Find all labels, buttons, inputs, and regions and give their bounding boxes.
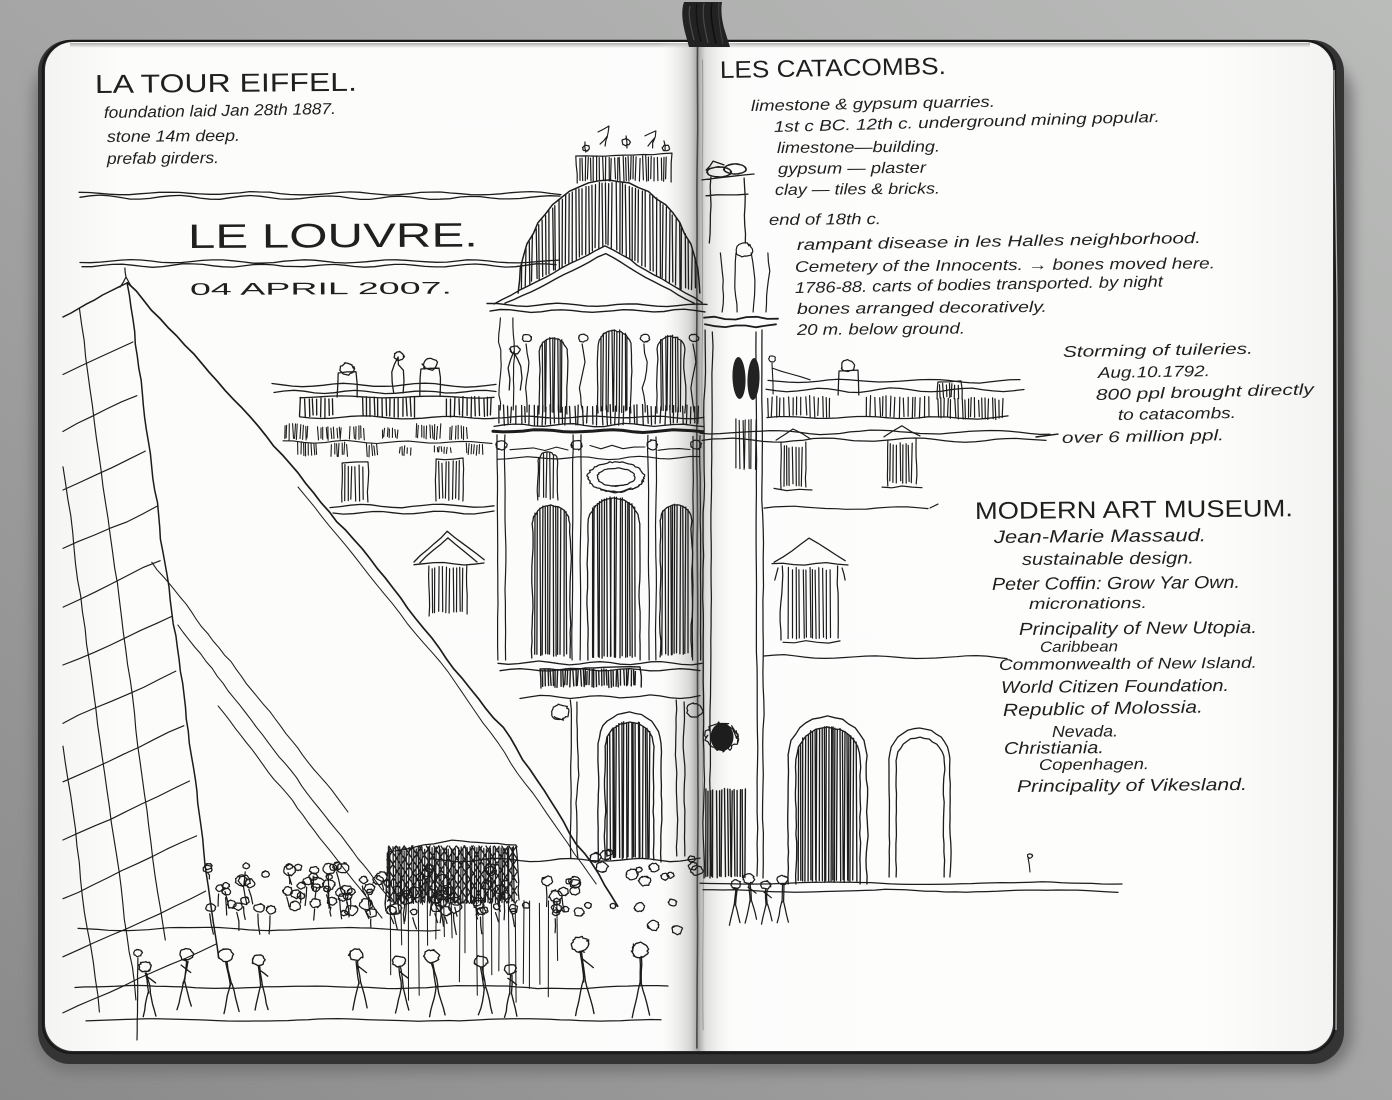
svg-text:Storming of tuileries.: Storming of tuileries. — [1063, 341, 1253, 361]
svg-text:Christiania.: Christiania. — [1004, 738, 1104, 758]
svg-text:20 m. below ground.: 20 m. below ground. — [796, 321, 965, 339]
svg-text:Aug.10.1792.: Aug.10.1792. — [1097, 363, 1210, 382]
svg-text:LE LOUVRE.: LE LOUVRE. — [188, 216, 478, 256]
svg-text:Republic of Molossia.: Republic of Molossia. — [1003, 697, 1203, 720]
svg-text:prefab girders.: prefab girders. — [106, 150, 219, 168]
svg-text:stone 14m deep.: stone 14m deep. — [107, 128, 240, 146]
svg-text:04 APRIL 2007.: 04 APRIL 2007. — [190, 279, 452, 299]
svg-text:Principality of New Utopia.: Principality of New Utopia. — [1019, 617, 1257, 639]
svg-text:bones arranged decoratively.: bones arranged decoratively. — [797, 299, 1047, 318]
svg-text:gypsum — plaster: gypsum — plaster — [778, 160, 927, 178]
svg-text:limestone—building.: limestone—building. — [777, 139, 940, 157]
svg-text:Caribbean: Caribbean — [1040, 638, 1118, 656]
svg-text:over 6 million ppl.: over 6 million ppl. — [1062, 427, 1224, 447]
svg-text:micronations.: micronations. — [1029, 595, 1147, 613]
svg-text:Principality of Vikesland.: Principality of Vikesland. — [1017, 775, 1247, 796]
svg-text:sustainable design.: sustainable design. — [1022, 548, 1194, 569]
svg-text:Commonwealth of New Island.: Commonwealth of New Island. — [999, 655, 1257, 674]
svg-text:Peter Coffin: Grow Yar Own.: Peter Coffin: Grow Yar Own. — [992, 572, 1240, 594]
svg-text:to catacombs.: to catacombs. — [1118, 405, 1236, 424]
svg-text:LA TOUR EIFFEL.: LA TOUR EIFFEL. — [95, 67, 357, 99]
svg-text:LES CATACOMBS.: LES CATACOMBS. — [720, 53, 946, 84]
svg-text:MODERN ART MUSEUM.: MODERN ART MUSEUM. — [975, 495, 1293, 525]
svg-text:clay — tiles & bricks.: clay — tiles & bricks. — [775, 181, 940, 199]
svg-text:Jean-Marie Massaud.: Jean-Marie Massaud. — [993, 525, 1206, 547]
svg-text:World Citizen Foundation.: World Citizen Foundation. — [1001, 676, 1229, 697]
svg-text:end of 18th c.: end of 18th c. — [769, 211, 881, 229]
svg-text:Copenhagen.: Copenhagen. — [1039, 756, 1149, 774]
